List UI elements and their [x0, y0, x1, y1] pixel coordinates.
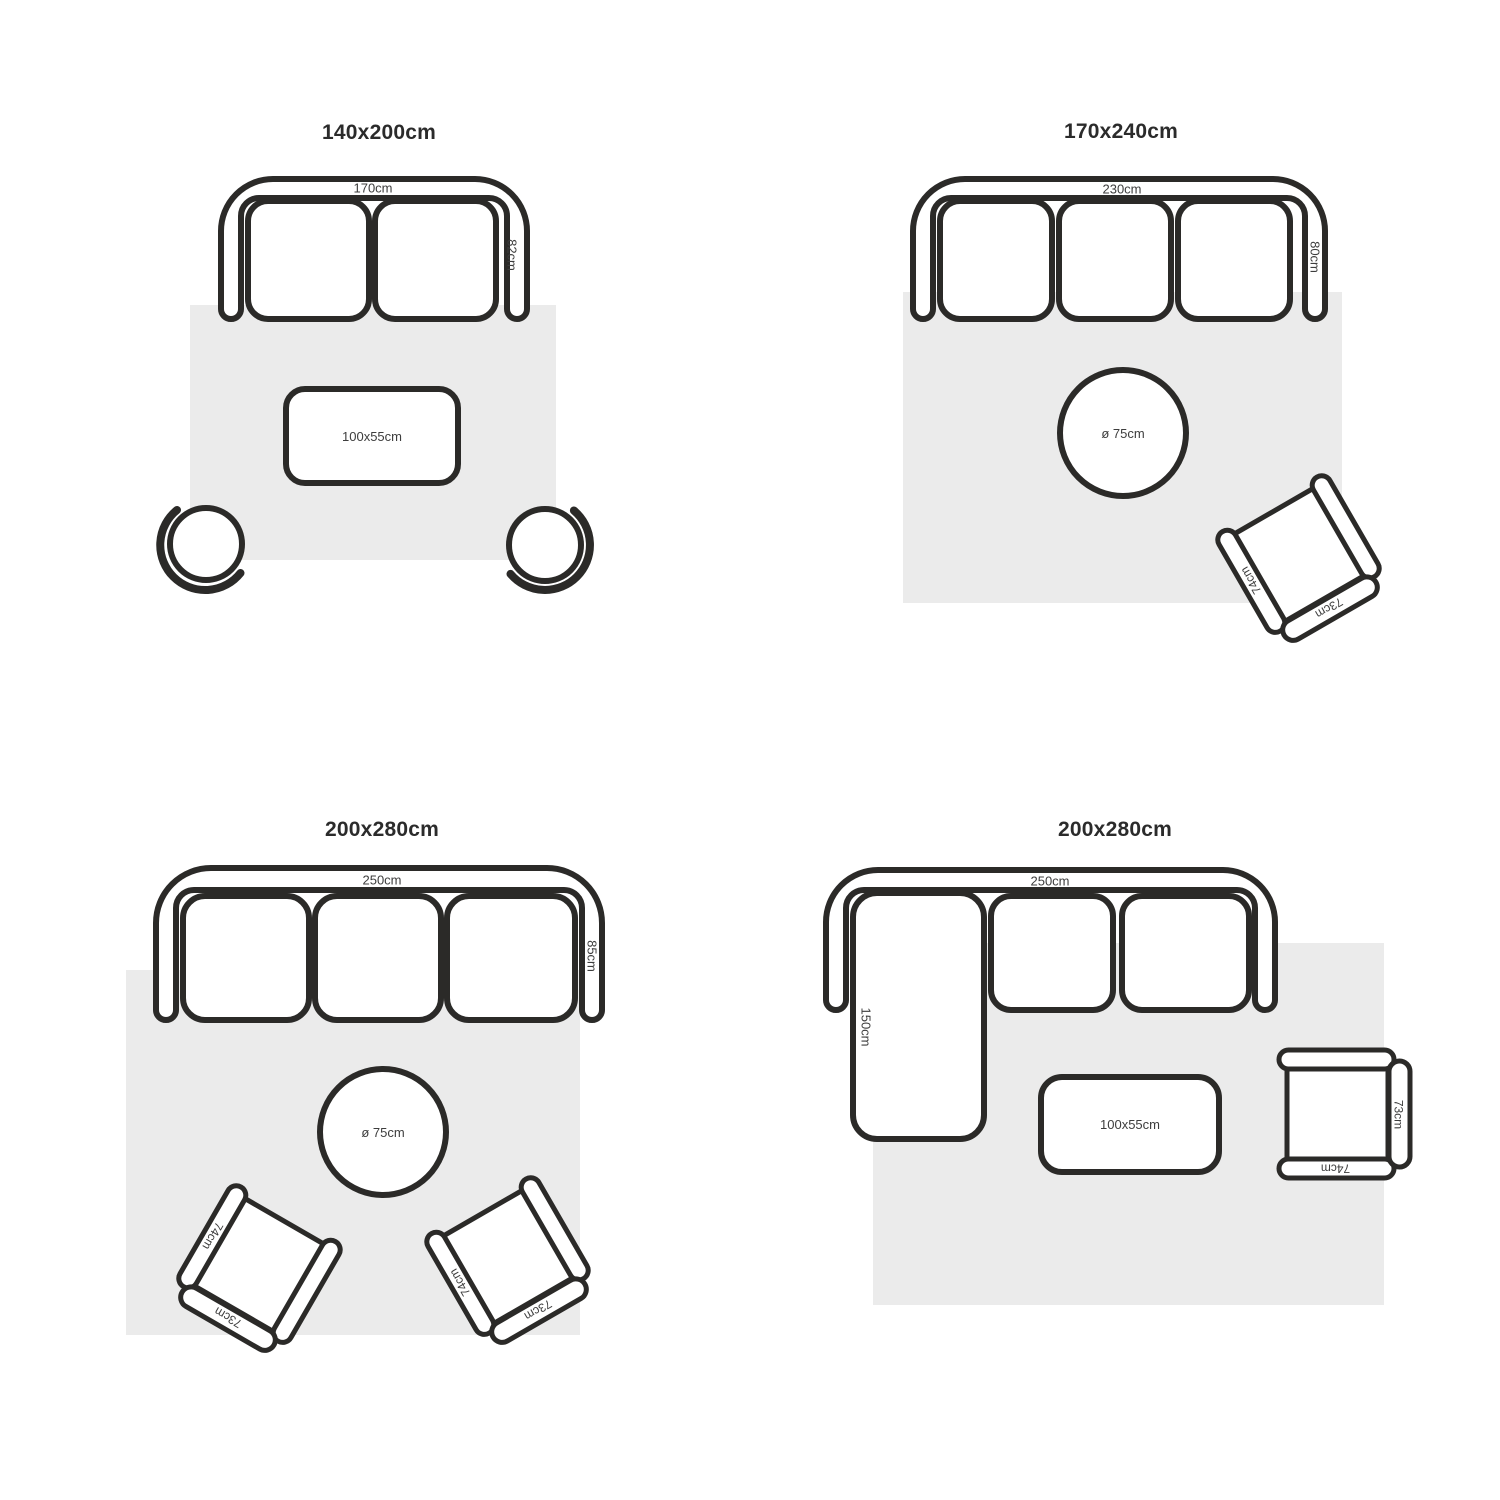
round-table-label: ø 75cm [361, 1125, 404, 1140]
sofa-width-label: 170cm [353, 181, 392, 196]
round-chair-seat [509, 509, 581, 581]
sofa-cushion [1122, 896, 1249, 1010]
sofa-width-label: 250cm [362, 873, 401, 888]
sofa-cushion [940, 201, 1052, 319]
round-chair-seat [170, 508, 242, 580]
chaise-depth-label: 150cm [859, 1007, 874, 1046]
sofa-cushion [1178, 201, 1290, 319]
sofa-cushion [447, 896, 575, 1020]
round-table: ø 75cm [317, 1066, 449, 1198]
sofa-width-label: 250cm [1030, 874, 1069, 889]
coffee-table: 100x55cm [283, 386, 461, 486]
sofa-depth-label: 80cm [1308, 241, 1323, 273]
sofa-cushion [315, 896, 441, 1020]
coffee-table-label: 100x55cm [342, 429, 402, 444]
sofa-cushion [991, 896, 1113, 1010]
armchair-seat [1285, 1060, 1391, 1169]
sofa-cushion [375, 201, 496, 319]
sofa-cushion [248, 201, 369, 319]
sofa-depth-label: 85cm [585, 940, 600, 972]
armchair-depth-label: 73cm [1392, 1070, 1406, 1160]
rug-size-guide: 140x200cm 170x240cm 200x280cm 200x280cm [0, 0, 1500, 1500]
armchair: 74cm 73cm [1277, 1048, 1413, 1181]
sofa-cushion [183, 896, 309, 1020]
armchair-arm-right [1277, 1048, 1397, 1072]
round-table: ø 75cm [1057, 367, 1189, 499]
round-table-label: ø 75cm [1101, 426, 1144, 441]
armchair-width-label: 74cm [1291, 1162, 1381, 1176]
coffee-table: 100x55cm [1038, 1074, 1222, 1175]
sofa-depth-label: 82cm [505, 239, 520, 271]
sofa-width-label: 230cm [1102, 182, 1141, 197]
sofa-cushion [1059, 201, 1171, 319]
coffee-table-label: 100x55cm [1100, 1117, 1160, 1132]
